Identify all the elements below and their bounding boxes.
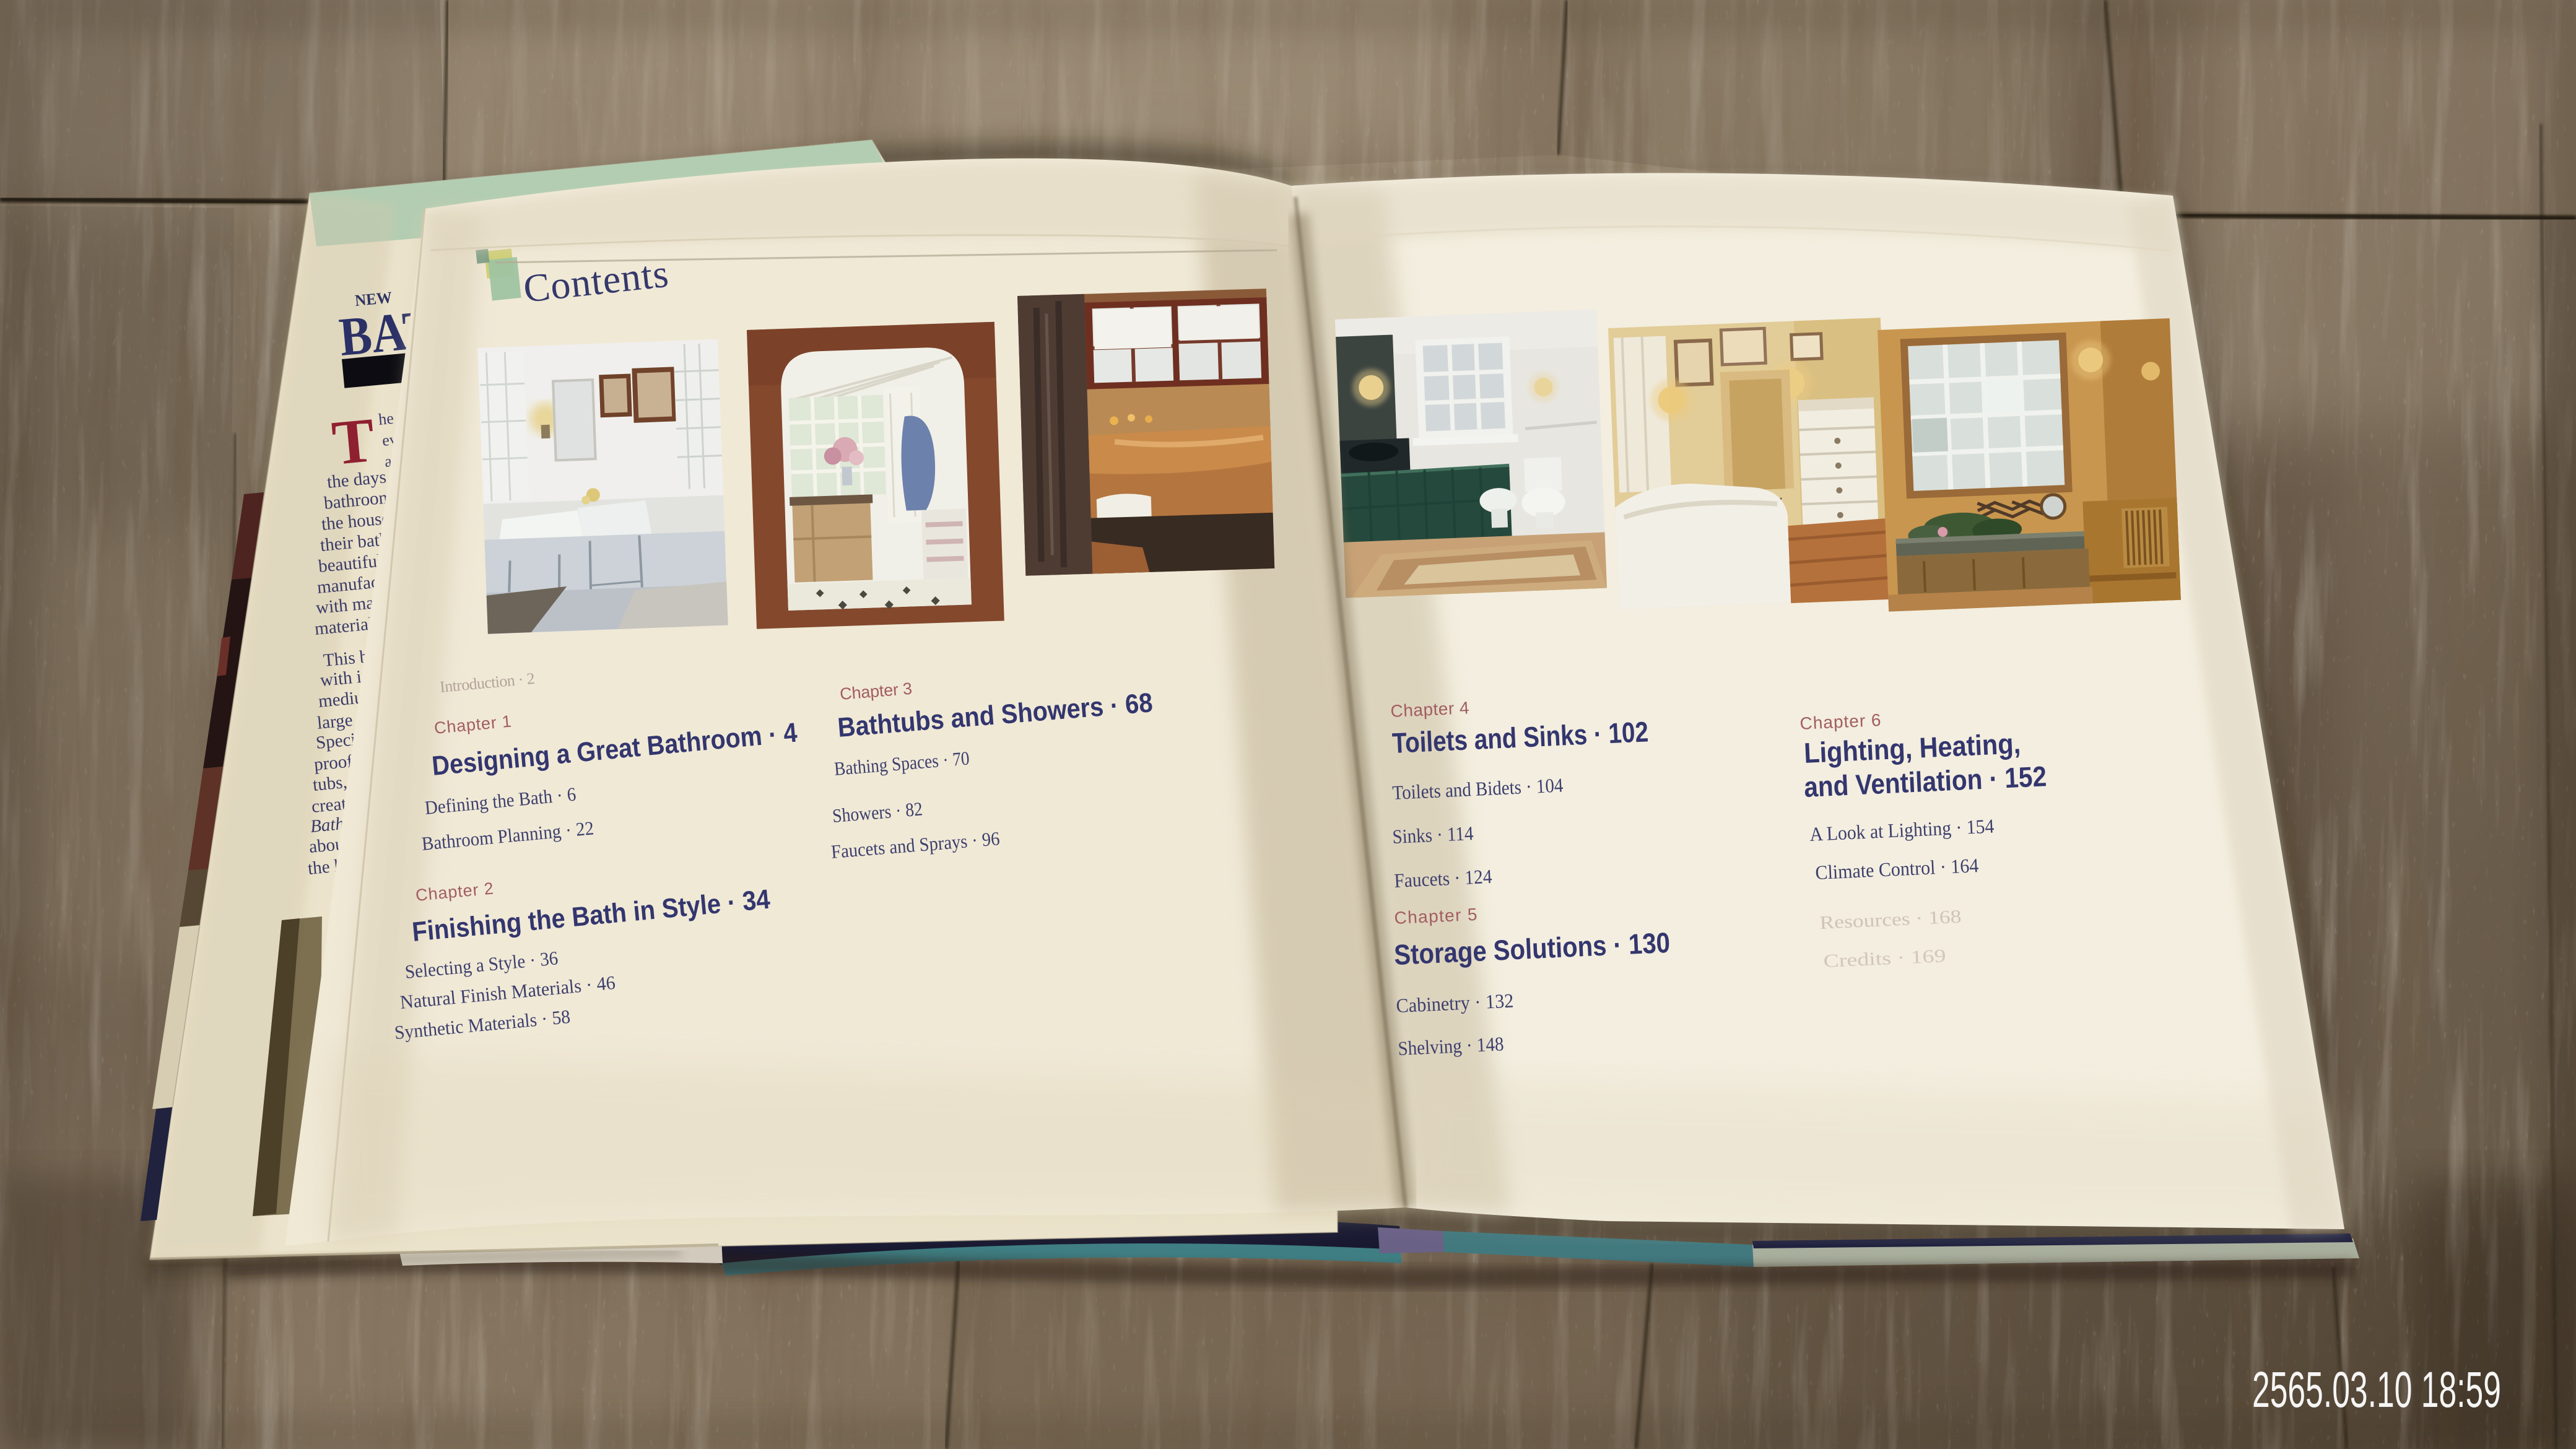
svg-text:2565.03.10 18:59: 2565.03.10 18:59	[2252, 1362, 2501, 1418]
svg-text:Chapter 6: Chapter 6	[1799, 710, 1881, 733]
svg-text:Sinks · 114: Sinks · 114	[1392, 822, 1474, 848]
svg-text:Chapter 4: Chapter 4	[1390, 698, 1469, 721]
svg-text:Faucets · 124: Faucets · 124	[1394, 865, 1492, 892]
svg-text:T: T	[329, 405, 378, 479]
